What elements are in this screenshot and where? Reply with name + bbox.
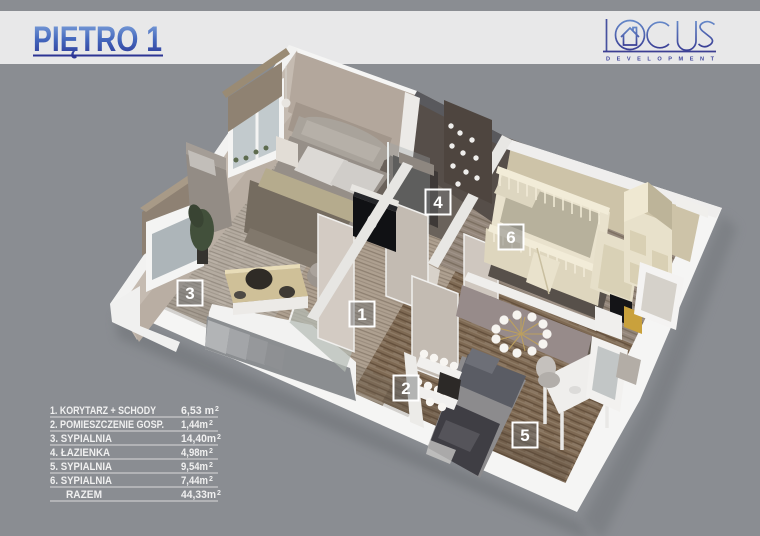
svg-text:14,40m: 14,40m bbox=[181, 433, 216, 445]
svg-text:2: 2 bbox=[401, 379, 410, 398]
svg-text:2: 2 bbox=[215, 406, 219, 413]
svg-text:2. POMIESZCZENIE GOSP.: 2. POMIESZCZENIE GOSP. bbox=[50, 419, 164, 431]
svg-text:2: 2 bbox=[209, 420, 213, 427]
svg-text:6,53 m: 6,53 m bbox=[181, 405, 214, 417]
svg-text:5. SYPIALNIA: 5. SYPIALNIA bbox=[50, 461, 112, 473]
svg-text:2: 2 bbox=[209, 462, 213, 469]
svg-text:3: 3 bbox=[185, 284, 194, 303]
svg-text:2: 2 bbox=[217, 490, 221, 497]
svg-text:6: 6 bbox=[506, 228, 515, 247]
svg-text:2: 2 bbox=[209, 448, 213, 455]
svg-text:7,44m: 7,44m bbox=[181, 475, 208, 487]
svg-text:4: 4 bbox=[433, 193, 443, 212]
svg-text:PIĘTRO 1: PIĘTRO 1 bbox=[33, 20, 162, 59]
svg-text:1,44m: 1,44m bbox=[181, 419, 208, 431]
svg-text:5: 5 bbox=[520, 426, 529, 445]
svg-text:9,54m: 9,54m bbox=[181, 461, 208, 473]
svg-text:2: 2 bbox=[209, 476, 213, 483]
svg-text:RAZEM: RAZEM bbox=[66, 489, 102, 501]
svg-text:4,98m: 4,98m bbox=[181, 447, 208, 459]
svg-text:2: 2 bbox=[217, 434, 221, 441]
svg-text:1: 1 bbox=[357, 305, 366, 324]
svg-text:44,33m: 44,33m bbox=[181, 489, 216, 501]
svg-text:3. SYPIALNIA: 3. SYPIALNIA bbox=[50, 433, 112, 445]
svg-text:4. ŁAZIENKA: 4. ŁAZIENKA bbox=[50, 447, 110, 459]
svg-text:1. KORYTARZ + SCHODY: 1. KORYTARZ + SCHODY bbox=[50, 405, 157, 417]
svg-text:6. SYPIALNIA: 6. SYPIALNIA bbox=[50, 475, 112, 487]
